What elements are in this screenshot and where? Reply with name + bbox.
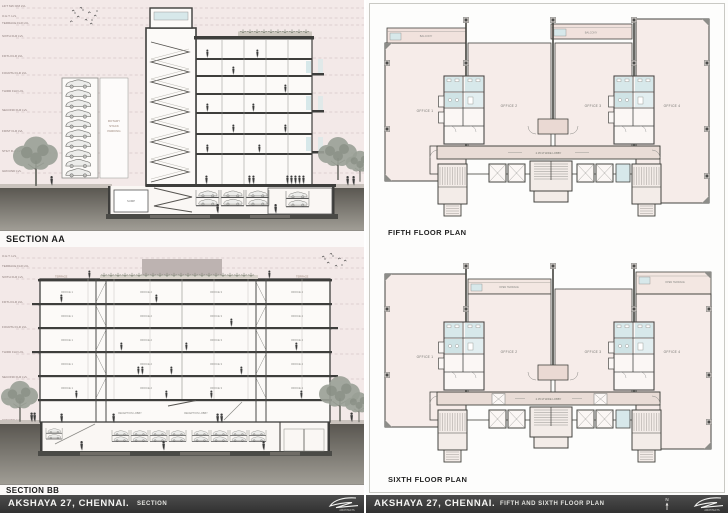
svg-text:N: N: [665, 497, 668, 502]
project-title: AKSHAYA 27, CHENNAI.: [8, 498, 129, 509]
svg-text:FOURTH FLR LVL: FOURTH FLR LVL: [2, 325, 27, 329]
svg-text:RECEPTION LOBBY: RECEPTION LOBBY: [118, 412, 142, 415]
plan-sixth: OPEN TERRACE OPEN TERRACE: [384, 263, 711, 462]
svg-text:OFFICE 2: OFFICE 2: [140, 314, 153, 318]
balcony-label-b: BALCONY: [585, 31, 598, 35]
fifth-floor-plan-title: FIFTH FLOOR PLAN: [388, 228, 466, 237]
svg-text:SIXTH FLR LVL: SIXTH FLR LVL: [2, 34, 24, 38]
building-section-aa: [146, 8, 336, 187]
side-stair-right: [632, 410, 661, 462]
terrace-label-left: TERRACE: [55, 275, 68, 279]
section-aa-label-band: SECTION AA: [0, 230, 364, 247]
svg-text:FIFTH FLR LVL: FIFTH FLR LVL: [2, 54, 23, 58]
section-bb-drawing: O.H.T. LVL TERRACE FLR LVL SIXTH FLR LVL…: [0, 246, 364, 484]
svg-text:FIRST FLR LVL: FIRST FLR LVL: [2, 129, 23, 133]
svg-text:STACK: STACK: [109, 124, 119, 128]
svg-text:RECEPTION LOBBY: RECEPTION LOBBY: [184, 412, 208, 415]
svg-text:SECOND FLR LVL: SECOND FLR LVL: [2, 108, 28, 112]
side-stair-right: [632, 164, 661, 216]
svg-text:OFFICE 3: OFFICE 3: [210, 290, 223, 294]
terrace-label-right: TERRACE: [296, 275, 309, 279]
central-stair: [530, 407, 572, 448]
architect-logo: ARCHITECTS: [693, 496, 725, 512]
titlebar-floor-plans: AKSHAYA 27, CHENNAI. FIFTH AND SIXTH FLO…: [366, 495, 728, 513]
svg-text:ROTARY: ROTARY: [108, 119, 120, 123]
svg-text:SECOND FLR LVL: SECOND FLR LVL: [2, 375, 28, 379]
svg-text:SIXTH FLR LVL: SIXTH FLR LVL: [2, 275, 24, 279]
side-stair-left: [438, 164, 467, 216]
svg-text:OFFICE 2: OFFICE 2: [140, 386, 153, 390]
sump-label: SUMP: [127, 199, 135, 203]
svg-text:TERRACE FLR LVL: TERRACE FLR LVL: [2, 21, 29, 25]
balcony-label-a: BALCONY: [420, 34, 433, 38]
svg-text:OFFICE 1: OFFICE 1: [61, 386, 74, 390]
svg-text:OFFICE 1: OFFICE 1: [61, 314, 74, 318]
svg-text:O.H.T. LVL: O.H.T. LVL: [2, 14, 17, 18]
project-title: AKSHAYA 27, CHENNAI.: [374, 498, 495, 509]
drawing-board: LIFT M/C RM LVL O.H.T. LVL TERRACE FLR L…: [0, 0, 728, 513]
architect-logo: ARCHITECTS: [328, 496, 360, 512]
sixth-floor-plan-title: SIXTH FLOOR PLAN: [388, 475, 467, 484]
plan-fifth: BALCONY BALCONY OFFICE: [384, 17, 709, 216]
sixth-floor-plan-drawing: OPEN TERRACE OPEN TERRACE: [370, 252, 726, 492]
svg-text:OFFICE 2: OFFICE 2: [140, 362, 153, 366]
office-3-label: OFFICE 3: [585, 350, 602, 354]
birds-flock: [322, 253, 346, 266]
svg-text:FOURTH FLR LVL: FOURTH FLR LVL: [2, 71, 27, 75]
north-arrow-icon: N: [660, 496, 674, 512]
svg-text:GROUND LVL: GROUND LVL: [2, 169, 22, 173]
fifth-floor-plan-drawing: BALCONY BALCONY OFFICE: [370, 6, 726, 244]
svg-text:PARKING: PARKING: [107, 129, 121, 133]
svg-text:OFFICE 2: OFFICE 2: [140, 338, 153, 342]
sheet-name: SECTION: [137, 501, 167, 507]
office-1-label: OFFICE 1: [417, 109, 434, 113]
open-terrace-label-b: OPEN TERRACE: [665, 281, 685, 284]
svg-text:OFFICE 4: OFFICE 4: [291, 290, 304, 294]
svg-text:OFFICE 3: OFFICE 3: [210, 362, 223, 366]
svg-text:FIFTH FLR LVL: FIFTH FLR LVL: [2, 300, 23, 304]
svg-text:THIRD FLR LVL: THIRD FLR LVL: [2, 89, 24, 93]
office-2-label: OFFICE 2: [501, 104, 518, 108]
sheet-floor-plans: BALCONY BALCONY OFFICE: [366, 0, 728, 513]
central-stair: [530, 161, 572, 202]
titlebar-sections: AKSHAYA 27, CHENNAI. SECTION ARCHITECTS: [0, 495, 364, 513]
svg-text:OFFICE 1: OFFICE 1: [61, 338, 74, 342]
office-4-label: OFFICE 4: [664, 350, 681, 354]
svg-text:TERRACE FLR LVL: TERRACE FLR LVL: [2, 264, 29, 268]
svg-text:LIFT M/C RM LVL: LIFT M/C RM LVL: [2, 4, 26, 8]
sidewalk-left: [0, 184, 112, 188]
sheet-name: FIFTH AND SIXTH FLOOR PLAN: [500, 501, 604, 507]
basement-aa: SUMP: [106, 186, 338, 219]
overhead-tank: [142, 259, 222, 277]
svg-text:OFFICE 4: OFFICE 4: [291, 338, 304, 342]
svg-text:OFFICE 3: OFFICE 3: [210, 338, 223, 342]
rotary-stack-parking: ROTARY STACK PARKING: [62, 78, 128, 178]
basement-bb: [38, 422, 332, 456]
svg-text:OFFICE 4: OFFICE 4: [291, 362, 304, 366]
svg-text:OFFICE 4: OFFICE 4: [291, 386, 304, 390]
svg-text:OFFICE 3: OFFICE 3: [210, 314, 223, 318]
section-aa-drawing: LIFT M/C RM LVL O.H.T. LVL TERRACE FLR L…: [0, 0, 364, 230]
lobby-label: 2.35 M WIDE LOBBY: [536, 397, 562, 401]
svg-text:O.H.T. LVL: O.H.T. LVL: [2, 254, 17, 258]
sheet-sections: LIFT M/C RM LVL O.H.T. LVL TERRACE FLR L…: [0, 0, 364, 513]
office-2-label: OFFICE 2: [501, 350, 518, 354]
svg-text:OFFICE 1: OFFICE 1: [61, 290, 74, 294]
office-1-label: OFFICE 1: [417, 355, 434, 359]
svg-text:ARCHITECTS: ARCHITECTS: [339, 509, 355, 512]
side-stair-left: [438, 410, 467, 462]
office-4-label: OFFICE 4: [664, 104, 681, 108]
svg-text:ARCHITECTS: ARCHITECTS: [704, 509, 720, 512]
birds-flock: [70, 7, 98, 24]
svg-text:THIRD FLR LVL: THIRD FLR LVL: [2, 350, 24, 354]
svg-text:OFFICE 2: OFFICE 2: [140, 290, 153, 294]
lobby-label: 2.35 M WIDE LOBBY: [536, 151, 562, 155]
svg-text:OFFICE 4: OFFICE 4: [291, 314, 304, 318]
building-section-bb: TERRACE TERRACE: [32, 259, 338, 423]
svg-text:OFFICE 1: OFFICE 1: [61, 362, 74, 366]
office-3-label: OFFICE 3: [585, 104, 602, 108]
open-terrace-label-a: OPEN TERRACE: [499, 286, 519, 289]
section-aa-title: SECTION AA: [6, 232, 65, 246]
svg-text:OFFICE 3: OFFICE 3: [210, 386, 223, 390]
